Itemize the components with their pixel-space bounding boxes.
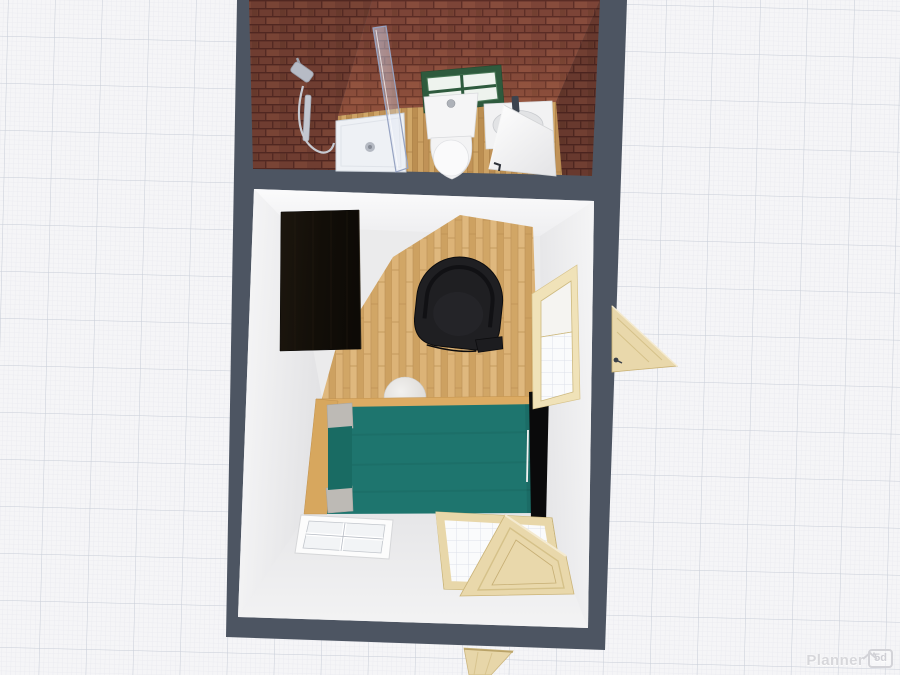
bed-bolster — [328, 426, 352, 490]
watermark-badge: 5d — [868, 649, 893, 668]
bed-pillow — [326, 486, 353, 513]
bed-mattress — [327, 404, 541, 514]
bed[interactable] — [304, 396, 541, 514]
wardrobe[interactable] — [280, 210, 361, 351]
bedroom-window[interactable] — [295, 515, 393, 559]
scene-viewport[interactable]: Planner 5d — [0, 0, 900, 675]
front-door[interactable] — [436, 512, 574, 596]
watermark-brand: Planner — [806, 652, 864, 669]
room-bathroom[interactable] — [249, 0, 600, 179]
house-roof-icon — [861, 651, 879, 660]
watermark-logo: Planner 5d — [806, 649, 893, 669]
bed-pillow — [327, 403, 353, 430]
